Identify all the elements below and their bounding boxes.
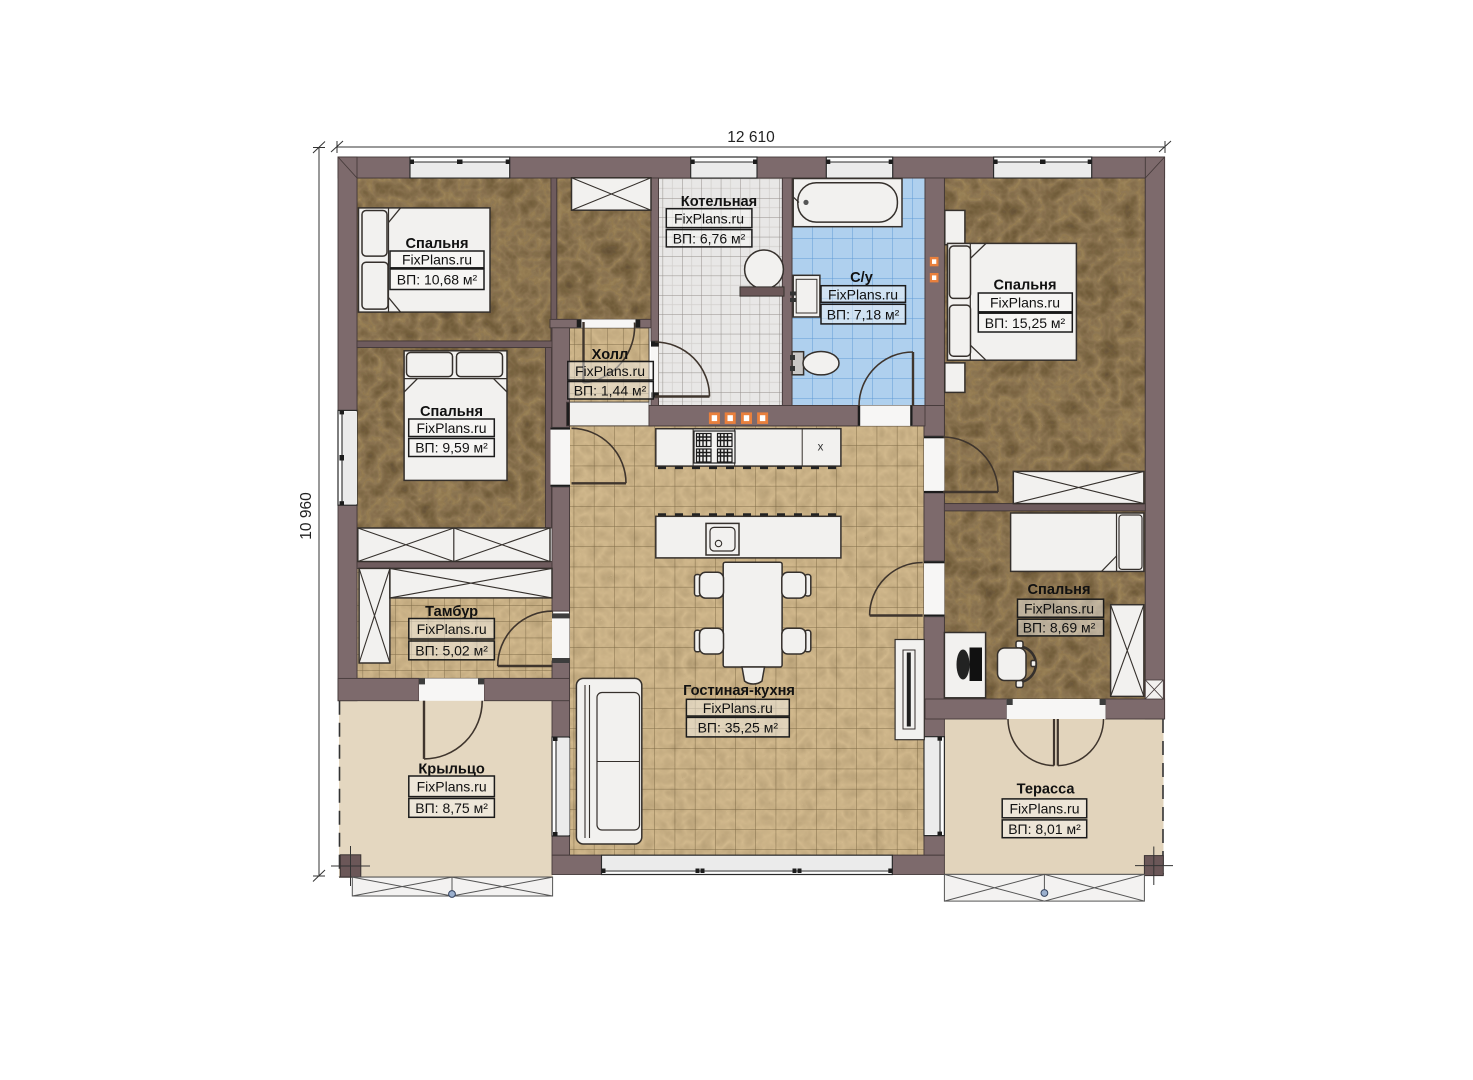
svg-text:FixPlans.ru: FixPlans.ru [990,295,1060,311]
svg-text:ВП: 1,44 м²: ВП: 1,44 м² [574,383,647,399]
svg-text:ВП: 10,68 м²: ВП: 10,68 м² [397,272,478,288]
svg-text:Спальня: Спальня [420,404,483,420]
svg-text:ВП: 8,01 м²: ВП: 8,01 м² [1008,821,1081,837]
svg-text:FixPlans.ru: FixPlans.ru [402,252,472,268]
svg-text:Терасса: Терасса [1017,782,1076,798]
svg-text:Спальня: Спальня [993,278,1056,294]
svg-text:ВП: 35,25 м²: ВП: 35,25 м² [698,719,779,735]
svg-text:FixPlans.ru: FixPlans.ru [575,363,645,379]
svg-text:Спальня: Спальня [405,236,468,252]
svg-text:FixPlans.ru: FixPlans.ru [1009,800,1079,816]
svg-text:ВП: 8,75 м²: ВП: 8,75 м² [415,800,488,816]
svg-text:Холл: Холл [592,347,629,363]
svg-text:FixPlans.ru: FixPlans.ru [828,286,898,302]
svg-text:FixPlans.ru: FixPlans.ru [1024,601,1094,617]
svg-text:10 960: 10 960 [298,492,315,540]
svg-text:ВП: 5,02 м²: ВП: 5,02 м² [415,643,488,659]
svg-text:Котельная: Котельная [681,194,757,210]
svg-text:FixPlans.ru: FixPlans.ru [417,621,487,637]
svg-text:ВП: 15,25 м²: ВП: 15,25 м² [985,315,1066,331]
svg-text:Спальня: Спальня [1027,582,1090,598]
svg-text:12 610: 12 610 [727,129,775,146]
svg-text:Гостиная-кухня: Гостиная-кухня [683,683,795,699]
svg-text:Тамбур: Тамбур [425,604,478,620]
svg-text:ВП: 6,76 м²: ВП: 6,76 м² [673,231,746,247]
svg-text:ВП: 9,59 м²: ВП: 9,59 м² [415,440,488,456]
svg-text:FixPlans.ru: FixPlans.ru [416,420,486,436]
svg-text:FixPlans.ru: FixPlans.ru [703,700,773,716]
svg-text:FixPlans.ru: FixPlans.ru [674,211,744,227]
svg-text:x: x [818,442,824,454]
svg-text:ВП: 7,18 м²: ВП: 7,18 м² [827,306,900,322]
svg-text:С/у: С/у [850,270,874,286]
svg-text:FixPlans.ru: FixPlans.ru [417,779,487,795]
svg-text:ВП: 8,69 м²: ВП: 8,69 м² [1023,620,1096,636]
svg-text:Крыльцо: Крыльцо [418,762,484,778]
